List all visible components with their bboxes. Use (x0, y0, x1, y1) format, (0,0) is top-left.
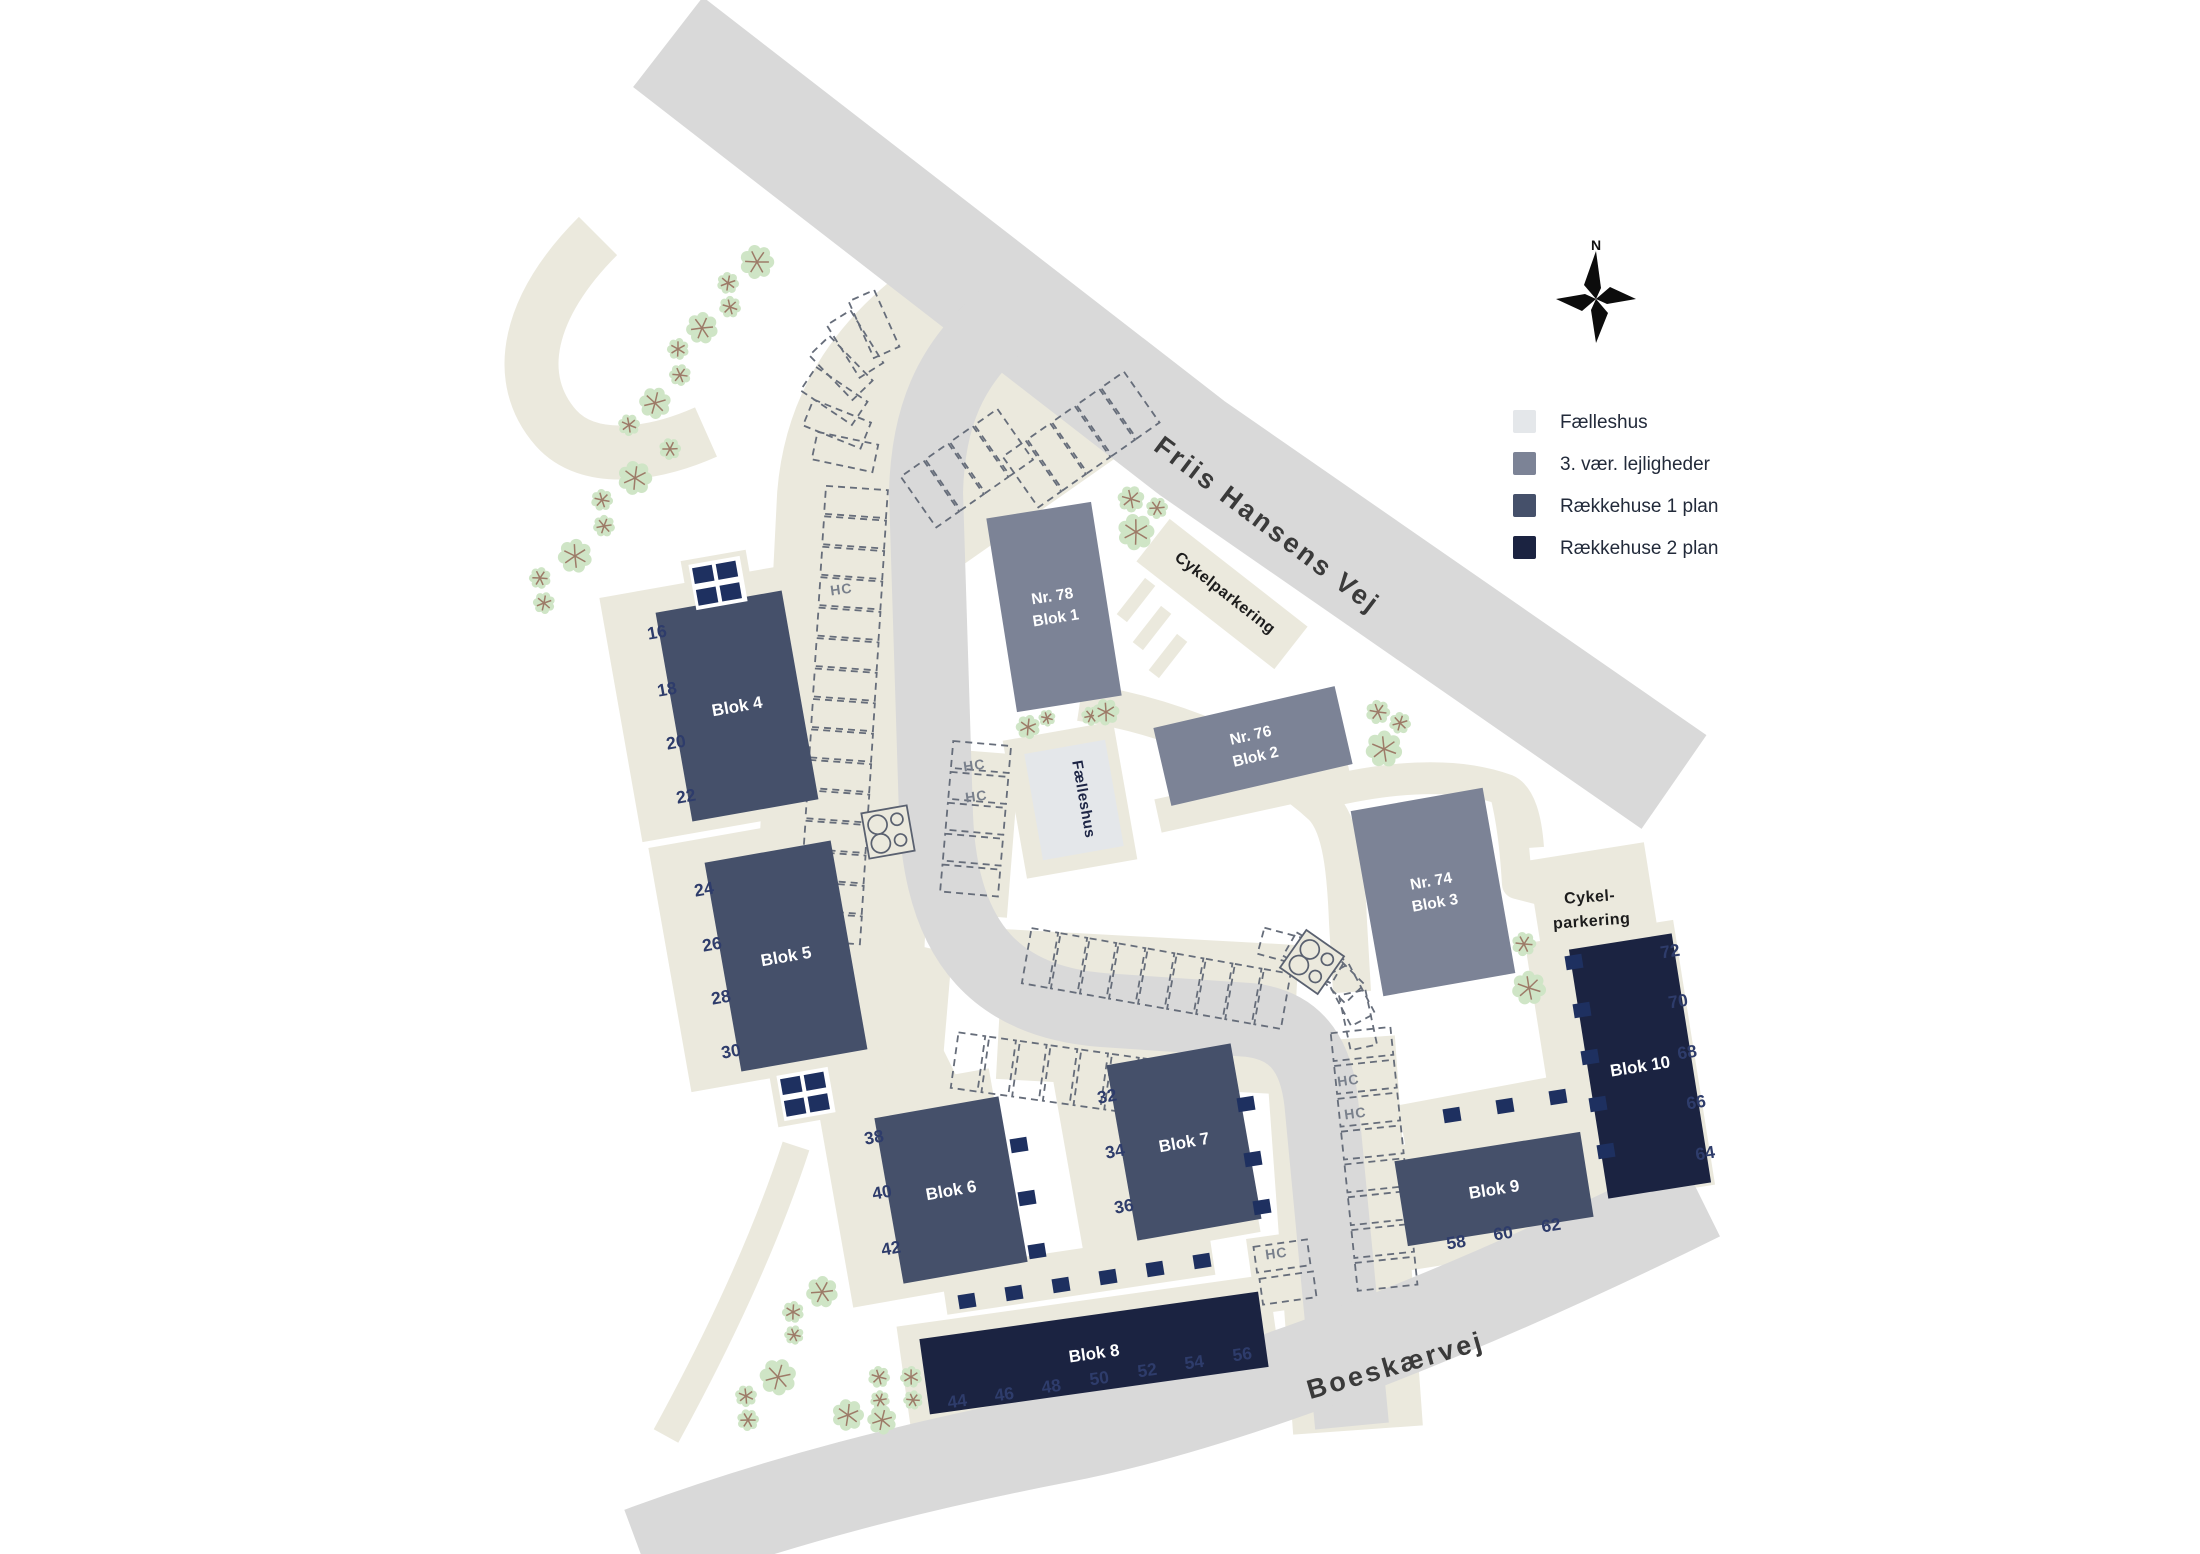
unit-number-46: 46 (993, 1383, 1015, 1406)
building-blok3 (1351, 788, 1516, 996)
legend-swatch-rowhouse1 (1513, 494, 1536, 517)
legend-row-apartments: 3. vær. lejligheder (1513, 452, 1711, 475)
shed-icon (1253, 1199, 1272, 1215)
shed-icon (1496, 1098, 1515, 1114)
tree-branch (672, 374, 680, 375)
hc-parking-label: HC (1264, 1244, 1288, 1263)
hc-parking-label: HC (1336, 1071, 1360, 1090)
shed-cell (720, 582, 742, 601)
tree-branch (1028, 719, 1029, 727)
compass-blade (1596, 287, 1636, 304)
tree-icon (717, 272, 739, 294)
unit-number-26: 26 (701, 933, 724, 956)
shed-icon (1589, 1096, 1608, 1112)
unit-number-50: 50 (1088, 1367, 1110, 1390)
compass: N (1556, 237, 1636, 343)
tree-branch (793, 1304, 794, 1312)
tree-icon (1118, 486, 1145, 512)
unit-number-62: 62 (1540, 1214, 1563, 1237)
compass-blade (1556, 294, 1596, 311)
shed-icon (1193, 1253, 1212, 1269)
pad-bike-prong (1149, 634, 1188, 678)
building-blok1 (986, 502, 1121, 712)
shed-block (776, 1067, 835, 1121)
unit-number-32: 32 (1096, 1085, 1119, 1108)
legend-label-rowhouse1: Rækkehuse 1 plan (1560, 496, 1718, 517)
legend-row-faelleshus: Fælleshus (1513, 410, 1648, 433)
bin-station (861, 805, 914, 858)
tree-icon (735, 1386, 757, 1407)
shed-cell (696, 586, 718, 605)
unit-number-36: 36 (1113, 1195, 1136, 1218)
unit-number-58: 58 (1445, 1231, 1468, 1254)
tree-branch (1157, 507, 1165, 508)
legend-row-rowhouse2: Rækkehuse 2 plan (1513, 536, 1718, 559)
tree-icon (741, 245, 774, 279)
hc-parking-label: HC (962, 756, 986, 775)
tree-icon (639, 388, 670, 419)
shed-icon (958, 1293, 977, 1309)
unit-number-54: 54 (1183, 1351, 1205, 1374)
tree-icon (669, 364, 691, 386)
unit-number-42: 42 (880, 1237, 903, 1260)
unit-number-60: 60 (1492, 1222, 1515, 1245)
tree-branch (702, 327, 713, 328)
unit-number-70: 70 (1667, 990, 1690, 1013)
unit-number-52: 52 (1136, 1359, 1158, 1382)
unit-number-30: 30 (720, 1040, 743, 1063)
legend-row-rowhouse1: Rækkehuse 1 plan (1513, 494, 1718, 517)
tree-icon (784, 1325, 803, 1344)
unit-number-66: 66 (1685, 1091, 1708, 1114)
tree-branch (1378, 712, 1386, 713)
legend-swatch-faelleshus (1513, 410, 1536, 433)
tree-icon (558, 539, 592, 573)
shed-icon (1237, 1096, 1256, 1112)
shed-icon (1581, 1049, 1600, 1065)
unit-number-16: 16 (646, 621, 669, 644)
tree-icon (1118, 514, 1154, 550)
legend-label-apartments: 3. vær. lejligheder (1560, 454, 1711, 475)
shed-icon (1565, 954, 1584, 970)
tree-icon (667, 338, 689, 360)
unit-number-56: 56 (1231, 1343, 1253, 1366)
tree-branch (1105, 703, 1106, 712)
compass-blade (1584, 251, 1601, 299)
compass-blade (1591, 299, 1608, 343)
shed-icon (1573, 1002, 1592, 1018)
pad-bike-prong (1117, 578, 1156, 622)
shed-cell (780, 1076, 802, 1095)
tree-icon (1366, 700, 1390, 724)
tree-icon (1038, 710, 1055, 727)
tree-icon (529, 567, 550, 589)
shed-cell (692, 565, 714, 584)
tree-branch (574, 544, 575, 556)
shed-icon (1018, 1190, 1037, 1206)
tree-icon (782, 1301, 804, 1323)
legend-swatch-rowhouse2 (1513, 536, 1536, 559)
shed-cell (716, 561, 738, 580)
tree-branch (873, 1400, 880, 1401)
shed-icon (1597, 1143, 1616, 1159)
tree-branch (746, 1396, 747, 1404)
hc-parking-label: HC (829, 580, 853, 599)
compass-rose-icon (1556, 251, 1636, 343)
shed-cell (808, 1093, 830, 1112)
compass-north-label: N (1591, 237, 1601, 253)
legend-label-rowhouse2: Rækkehuse 2 plan (1560, 538, 1718, 559)
tree-branch (811, 1292, 822, 1293)
unit-number-20: 20 (665, 731, 688, 754)
unit-number-24: 24 (693, 878, 716, 901)
pad-bike-prong (1133, 606, 1172, 650)
tree-icon (591, 489, 613, 511)
shed-icon (1244, 1151, 1263, 1167)
site-plan-page: Nr. 78Blok 1Nr. 76Blok 2Nr. 74Blok 3Blok… (0, 0, 2200, 1554)
unit-number-18: 18 (656, 678, 679, 701)
hc-parking-label: HC (964, 787, 988, 806)
area-label-cykelparkering-east-line1: Cykel- (1564, 887, 1616, 908)
unit-number-64: 64 (1694, 1142, 1717, 1165)
tree-icon (1366, 731, 1402, 767)
tree-branch (1027, 727, 1028, 735)
unit-number-22: 22 (675, 785, 698, 808)
legend-label-faelleshus: Fælleshus (1560, 412, 1648, 433)
tree-icon (1512, 932, 1536, 956)
tree-icon (760, 1359, 796, 1395)
tree-icon (868, 1366, 890, 1388)
shed-icon (1005, 1285, 1024, 1301)
site-plan-svg: Nr. 78Blok 1Nr. 76Blok 2Nr. 74Blok 3Blok… (0, 0, 2200, 1554)
tree-branch (604, 525, 612, 526)
unit-number-68: 68 (1676, 1041, 1699, 1064)
tree-icon (1146, 497, 1168, 519)
legend: Fælleshus3. vær. lejlighederRækkehuse 1 … (1513, 410, 1718, 559)
shed-block (688, 556, 747, 610)
tree-branch (629, 425, 630, 433)
tree-icon (737, 1409, 759, 1431)
unit-number-34: 34 (1104, 1140, 1127, 1163)
shed-icon (1099, 1269, 1118, 1285)
tree-icon (686, 312, 717, 343)
legend-swatch-apartments (1513, 452, 1536, 475)
path-spine-to-blok6 (902, 1032, 932, 1092)
unit-number-48: 48 (1040, 1375, 1062, 1398)
shed-icon (1549, 1089, 1568, 1105)
unit-number-38: 38 (863, 1126, 886, 1149)
shed-icon (1146, 1261, 1165, 1277)
shed-icon (1028, 1243, 1047, 1259)
tree-icon (833, 1399, 864, 1430)
shed-icon (1443, 1107, 1462, 1123)
tree-branch (1524, 944, 1532, 945)
shed-cell (784, 1097, 806, 1116)
tree-icon (593, 515, 615, 536)
tree-branch (1516, 943, 1524, 944)
unit-number-44: 44 (946, 1390, 968, 1413)
shed-icon (1010, 1137, 1029, 1153)
tree-branch (540, 578, 548, 579)
tree-branch (634, 478, 635, 490)
unit-number-28: 28 (710, 986, 733, 1009)
tree-icon (533, 592, 555, 614)
tree-branch (745, 1388, 746, 1396)
tree-icon (719, 296, 741, 318)
hc-parking-label: HC (1343, 1104, 1367, 1123)
tree-icon (806, 1276, 837, 1307)
tree-icon (1389, 712, 1411, 734)
shed-cell (804, 1072, 826, 1091)
unit-number-72: 72 (1659, 940, 1682, 963)
unit-number-40: 40 (871, 1181, 894, 1204)
tree-branch (745, 261, 757, 262)
shed-icon (1052, 1277, 1071, 1293)
